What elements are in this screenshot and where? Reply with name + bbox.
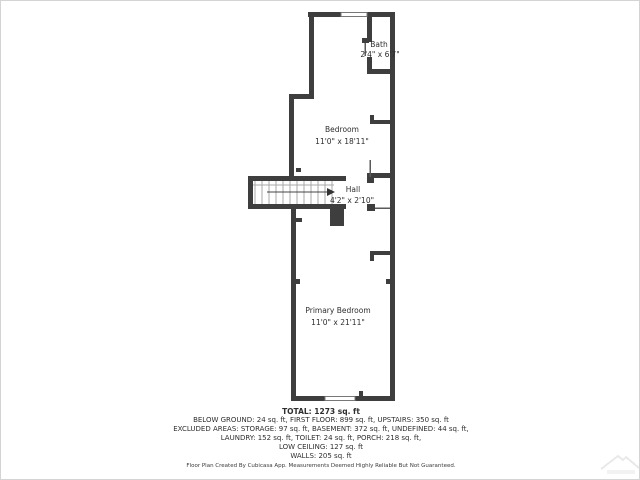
bedroom-dims: 11'0" x 18'11" [315, 137, 369, 146]
wall-left-mid [289, 94, 294, 181]
room-labels: Bath 2'4" x 6'7" Bedroom 11'0" x 18'11" … [305, 40, 399, 327]
floor-plan-page: Bath 2'4" x 6'7" Bedroom 11'0" x 18'11" … [0, 0, 640, 480]
wall-right [390, 12, 395, 401]
summary-line: EXCLUDED AREAS: STORAGE: 97 sq. ft, BASE… [1, 425, 640, 434]
summary-line: WALLS: 205 sq. ft [1, 452, 640, 461]
bath-label: Bath [370, 40, 388, 49]
wall-stub-right [370, 251, 390, 255]
summary-line: LOW CEILING: 127 sq. ft [1, 443, 640, 452]
wall-tick-b [296, 218, 302, 222]
disclaimer-text: Floor Plan Created By Cubicasa App. Meas… [1, 463, 640, 469]
summary-line: LAUNDRY: 152 sq. ft, TOILET: 24 sq. ft, … [1, 434, 640, 443]
wall-left-upper [309, 12, 314, 99]
summary-line: BELOW GROUND: 24 sq. ft, FIRST FLOOR: 89… [1, 416, 640, 425]
wall-tick-bottom [359, 391, 363, 396]
bath-door-hinge [362, 38, 369, 43]
primary-bedroom-label: Primary Bedroom [305, 306, 370, 315]
hall-label: Hall [346, 185, 360, 194]
wall-tick-left [296, 279, 300, 284]
wall-closet-tick [370, 115, 374, 120]
wall-bath-lower [367, 57, 372, 71]
wall-stub-right-tick [370, 255, 374, 261]
total-area: TOTAL: 1273 sq. ft [1, 407, 640, 416]
window-top [341, 13, 367, 17]
bedroom-door-hinge [367, 177, 374, 183]
wall-left-lower [291, 209, 296, 401]
walls [248, 12, 395, 401]
wall-tick-a [296, 168, 301, 172]
wall-hall-divider [330, 204, 344, 226]
wall-closet-stub [370, 120, 390, 124]
primary-door-hinge [367, 204, 375, 211]
bath-dims: 2'4" x 6'7" [360, 50, 399, 59]
wall-bath-bottom [367, 69, 390, 74]
bedroom-label: Bedroom [325, 125, 359, 134]
window-bottom [325, 397, 355, 401]
primary-bedroom-dims: 11'0" x 21'11" [311, 318, 365, 327]
wall-tick-right [386, 279, 390, 284]
wall-hall-top [248, 176, 346, 181]
hall-dims: 4'2" x 2'10" [330, 196, 374, 205]
area-summary: TOTAL: 1273 sq. ft BELOW GROUND: 24 sq. … [1, 407, 640, 461]
